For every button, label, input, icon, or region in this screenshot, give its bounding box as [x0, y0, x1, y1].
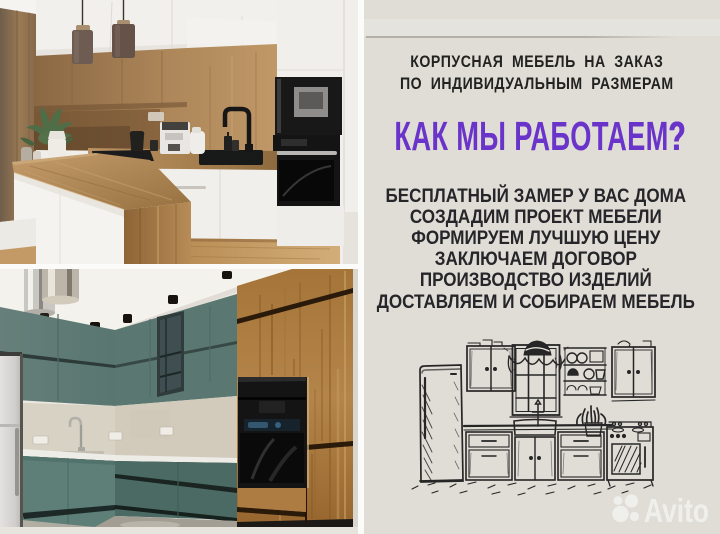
svg-text:Avito: Avito — [644, 492, 709, 529]
